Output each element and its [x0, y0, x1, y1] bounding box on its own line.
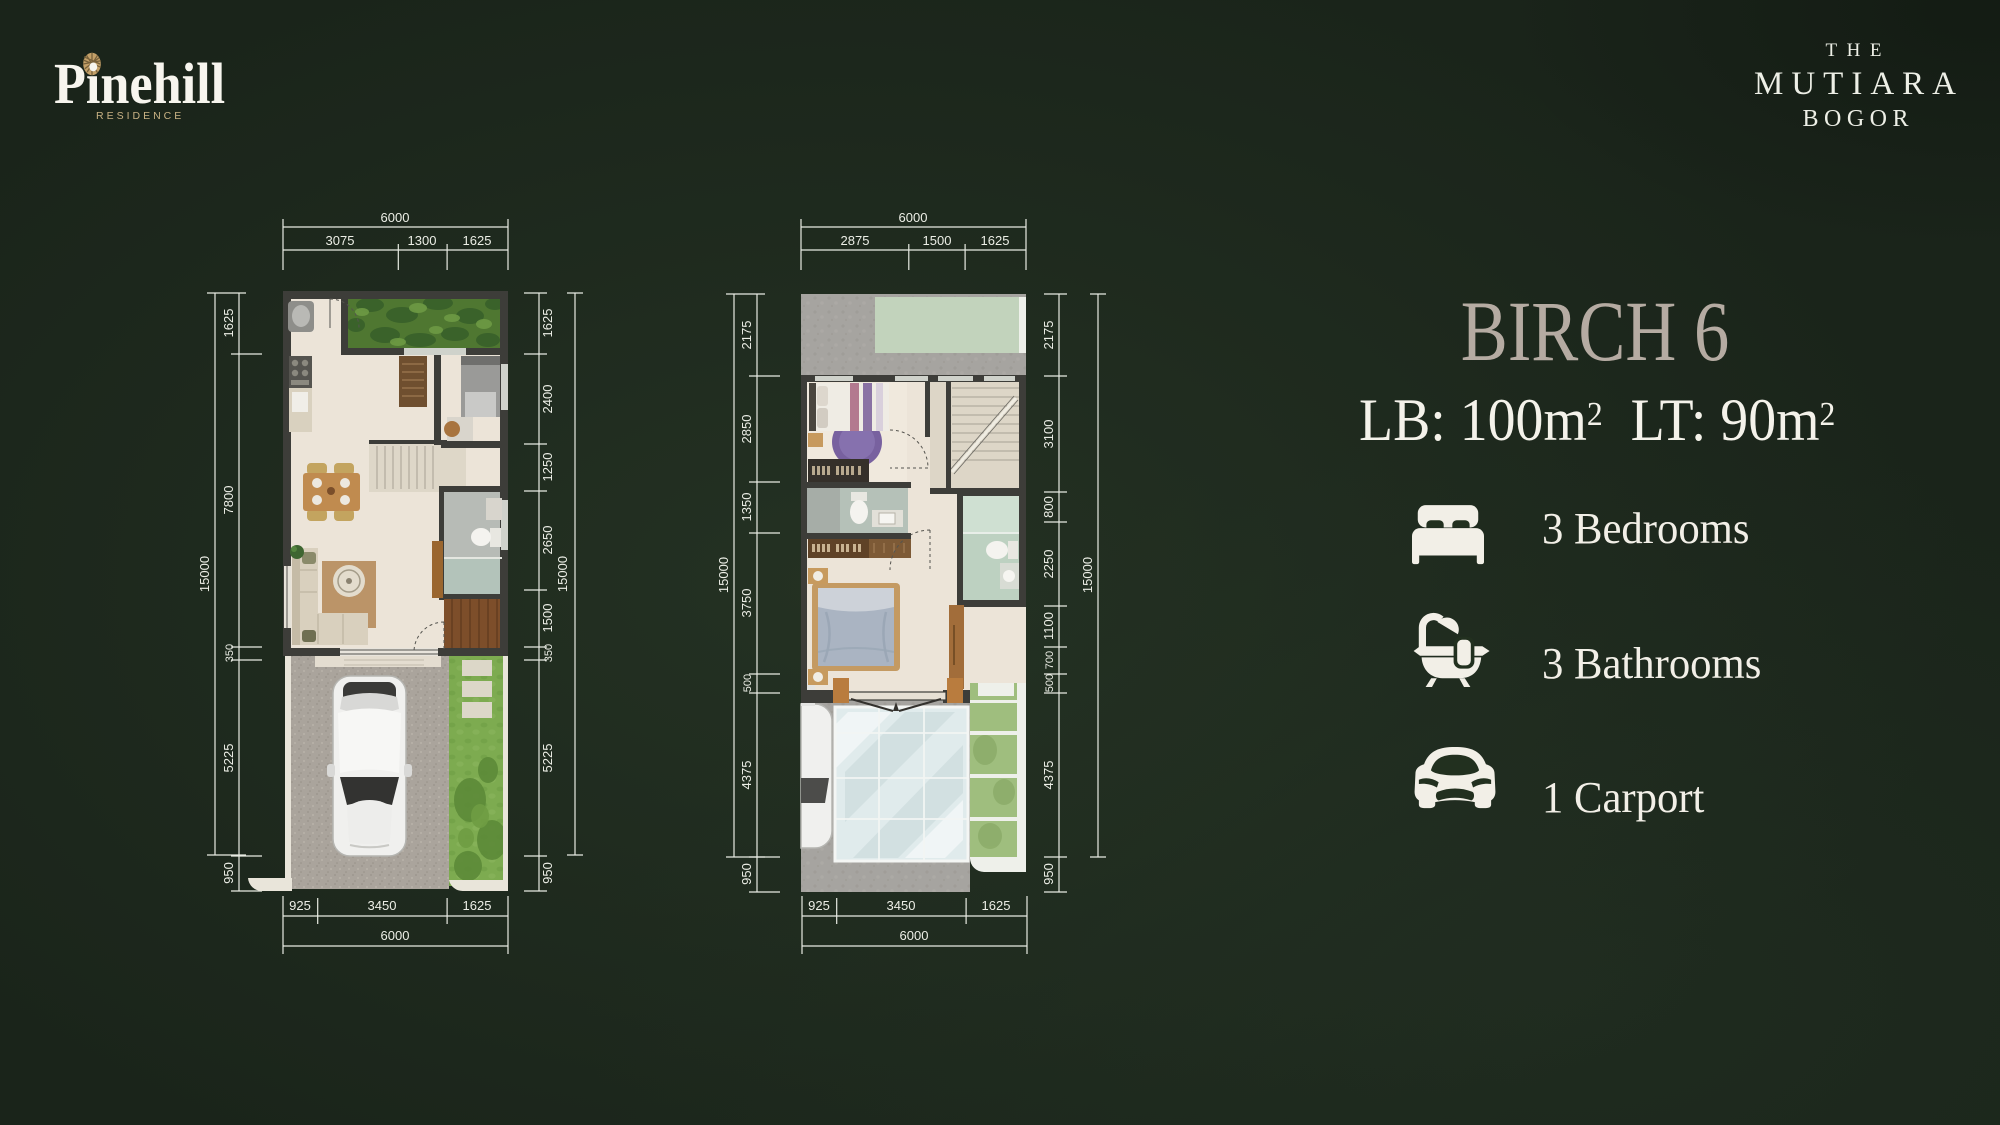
svg-text:2650: 2650: [540, 526, 555, 555]
svg-text:3450: 3450: [887, 898, 916, 913]
svg-text:2875: 2875: [841, 233, 870, 248]
svg-text:1625: 1625: [463, 898, 492, 913]
svg-text:1625: 1625: [221, 309, 236, 338]
svg-text:1500: 1500: [923, 233, 952, 248]
svg-text:6000: 6000: [381, 210, 410, 225]
svg-text:925: 925: [289, 898, 311, 913]
svg-text:1625: 1625: [982, 898, 1011, 913]
svg-text:1250: 1250: [540, 453, 555, 482]
svg-text:2850: 2850: [739, 415, 754, 444]
svg-text:2175: 2175: [1041, 321, 1056, 350]
svg-text:350: 350: [224, 644, 236, 662]
svg-text:6000: 6000: [381, 928, 410, 943]
svg-text:1625: 1625: [463, 233, 492, 248]
svg-text:500: 500: [1044, 674, 1056, 692]
svg-text:15000: 15000: [555, 556, 570, 592]
svg-text:1500: 1500: [540, 604, 555, 633]
svg-text:2400: 2400: [540, 385, 555, 414]
svg-text:1100: 1100: [1041, 612, 1056, 640]
svg-text:15000: 15000: [197, 556, 212, 592]
svg-text:3075: 3075: [326, 233, 355, 248]
svg-text:4375: 4375: [739, 761, 754, 790]
svg-text:1350: 1350: [739, 493, 754, 522]
svg-text:500: 500: [742, 674, 754, 692]
svg-text:700: 700: [1044, 651, 1056, 669]
svg-text:800: 800: [1041, 496, 1056, 518]
svg-text:6000: 6000: [900, 928, 929, 943]
svg-text:950: 950: [739, 863, 754, 885]
svg-text:1625: 1625: [981, 233, 1010, 248]
svg-text:15000: 15000: [1080, 557, 1095, 593]
svg-text:950: 950: [540, 862, 555, 884]
svg-text:2250: 2250: [1041, 550, 1056, 579]
svg-text:3450: 3450: [368, 898, 397, 913]
svg-text:3750: 3750: [739, 589, 754, 618]
svg-text:950: 950: [221, 862, 236, 884]
svg-text:2175: 2175: [739, 321, 754, 350]
svg-text:15000: 15000: [716, 557, 731, 593]
svg-text:1625: 1625: [540, 309, 555, 338]
svg-text:4375: 4375: [1041, 761, 1056, 790]
svg-text:6000: 6000: [899, 210, 928, 225]
svg-text:3100: 3100: [1041, 420, 1056, 449]
svg-text:1300: 1300: [408, 233, 437, 248]
svg-text:5225: 5225: [540, 744, 555, 773]
svg-text:7800: 7800: [221, 486, 236, 515]
svg-text:5225: 5225: [221, 744, 236, 773]
svg-text:950: 950: [1041, 863, 1056, 885]
svg-text:925: 925: [808, 898, 830, 913]
svg-text:350: 350: [543, 644, 555, 662]
